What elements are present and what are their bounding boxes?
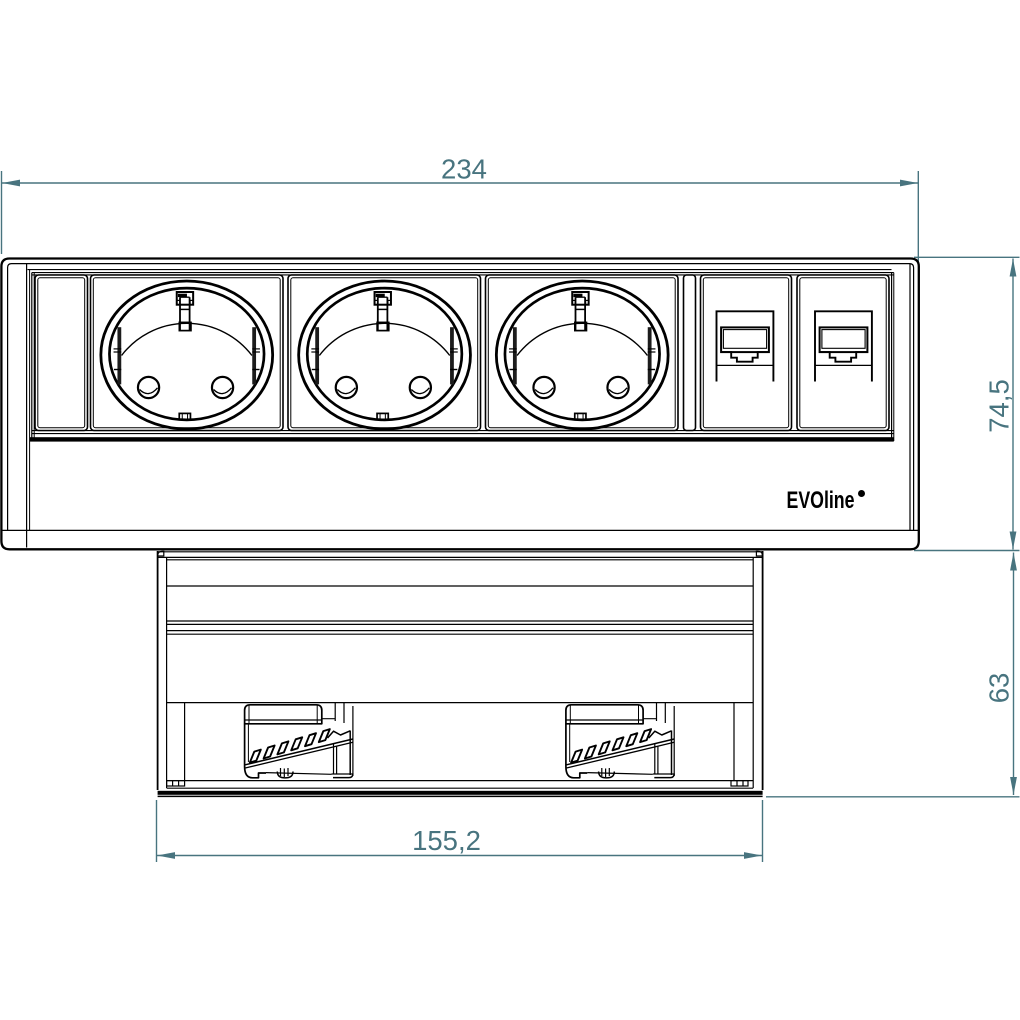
svg-text:234: 234: [441, 154, 487, 185]
svg-text:74,5: 74,5: [984, 379, 1015, 433]
svg-text:63: 63: [984, 673, 1015, 704]
svg-text:EVOline: EVOline: [787, 487, 855, 514]
svg-text:155,2: 155,2: [412, 825, 481, 856]
